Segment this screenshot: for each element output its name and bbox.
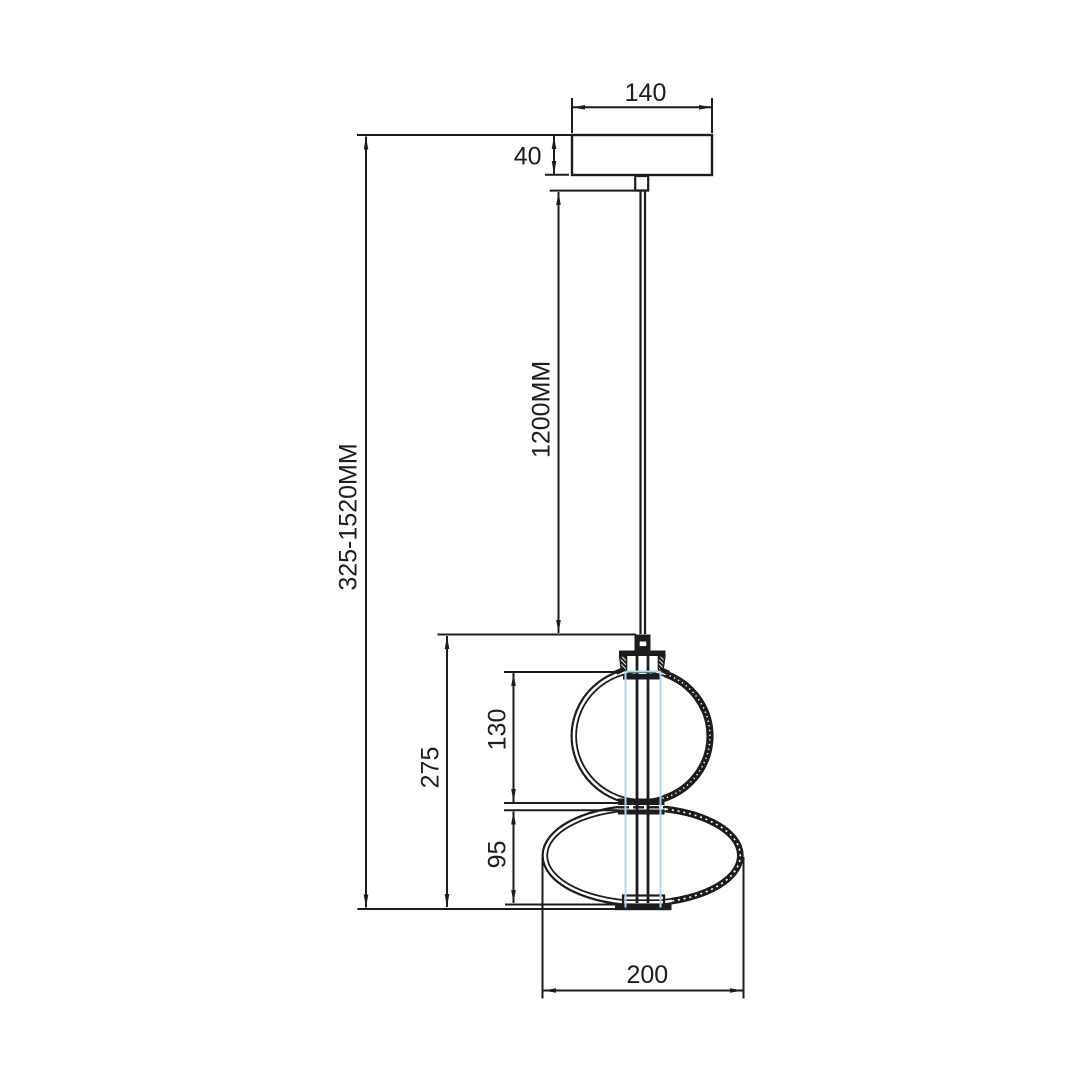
svg-text:140: 140: [625, 79, 667, 107]
svg-text:40: 40: [514, 143, 542, 171]
svg-text:95: 95: [484, 841, 512, 869]
svg-text:325-1520MM: 325-1520MM: [335, 443, 363, 590]
svg-text:130: 130: [484, 709, 512, 751]
svg-text:200: 200: [626, 961, 668, 989]
svg-text:275: 275: [417, 747, 445, 789]
svg-text:1200MM: 1200MM: [528, 361, 556, 458]
